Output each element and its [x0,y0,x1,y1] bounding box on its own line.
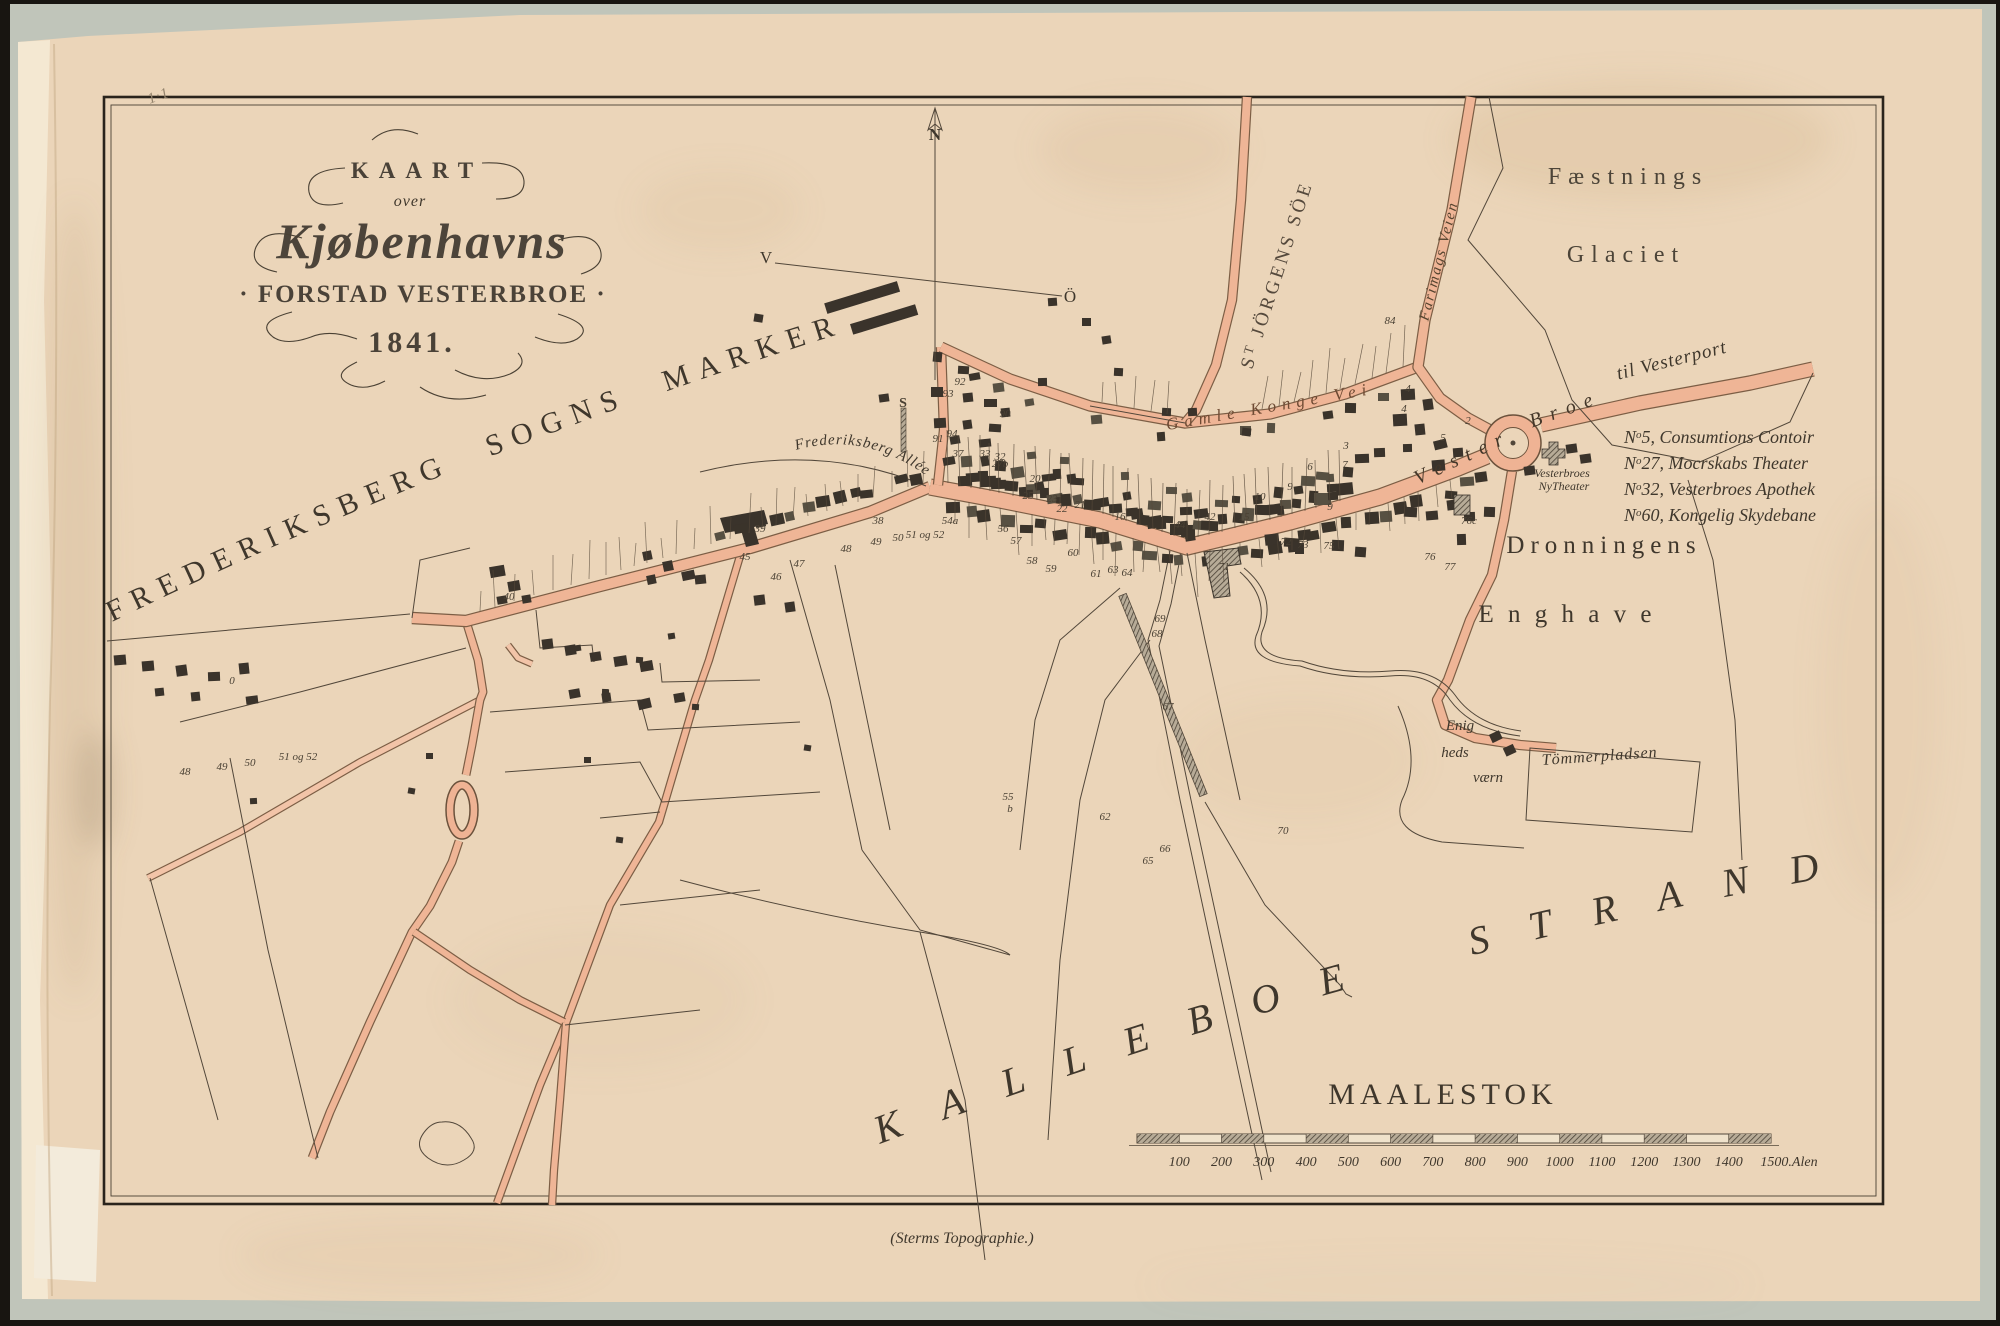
svg-text:0: 0 [229,675,235,687]
svg-text:NyTheater: NyTheater [1538,479,1590,493]
svg-text:76c: 76c [1461,515,1477,527]
svg-text:50: 50 [245,757,257,769]
svg-text:56: 56 [998,523,1010,535]
svg-text:Glaciet: Glaciet [1567,242,1685,268]
svg-text:71: 71 [1219,561,1230,573]
svg-text:64: 64 [1122,567,1134,579]
svg-text:N: N [929,125,942,144]
svg-text:9: 9 [1287,481,1293,493]
svg-text:6: 6 [1307,461,1313,473]
svg-text:værn: værn [1473,770,1503,786]
svg-text:500: 500 [1338,1155,1359,1170]
svg-text:62: 62 [1100,811,1112,823]
svg-text:No27, Mocrskabs Theater: No27, Mocrskabs Theater [1623,453,1809,473]
svg-text:59: 59 [1046,563,1058,575]
svg-text:57: 57 [1011,535,1023,547]
svg-text:25: 25 [1023,490,1035,502]
svg-text:44: 44 [1175,519,1187,531]
svg-text:40: 40 [504,591,516,603]
svg-text:2: 2 [1465,415,1471,427]
svg-text:300: 300 [1252,1155,1274,1170]
svg-text:49: 49 [871,536,883,548]
svg-text:51 og 52: 51 og 52 [906,529,945,541]
svg-text:1841.: 1841. [368,326,456,359]
svg-text:800: 800 [1465,1155,1486,1170]
svg-text:15: 15 [1239,511,1251,523]
svg-text:77: 77 [1445,561,1457,573]
svg-text:200: 200 [1211,1155,1232,1170]
svg-text:Ö: Ö [1064,287,1076,306]
svg-text:69: 69 [1155,613,1167,625]
svg-text:7: 7 [1342,459,1348,471]
svg-text:MAALESTOK: MAALESTOK [1328,1078,1557,1111]
svg-text:94: 94 [947,428,959,440]
svg-text:Fæstnings: Fæstnings [1548,164,1708,190]
svg-text:72: 72 [1281,536,1293,548]
svg-text:9: 9 [1327,501,1333,513]
svg-text:No5, Consumtions Contoir: No5, Consumtions Contoir [1623,427,1815,447]
svg-text:over: over [394,193,426,210]
svg-text:10: 10 [1255,491,1267,503]
svg-text:37: 37 [952,448,965,460]
svg-text:V: V [760,248,773,267]
svg-text:51 og 52: 51 og 52 [279,751,318,763]
svg-text:48: 48 [180,766,192,778]
svg-text:heds: heds [1441,745,1469,761]
svg-text:58: 58 [1027,555,1039,567]
svg-text:48: 48 [841,543,853,555]
svg-text:23: 23 [1047,493,1059,505]
svg-text:91: 91 [933,433,944,445]
svg-text:900: 900 [1507,1155,1528,1170]
svg-text:No32, Vesterbroes Apothek: No32, Vesterbroes Apothek [1623,479,1816,499]
svg-text:63: 63 [1108,564,1120,576]
svg-text:1300: 1300 [1672,1155,1700,1170]
svg-text:70: 70 [1278,825,1290,837]
svg-text:100: 100 [1169,1155,1190,1170]
svg-text:92: 92 [955,376,967,388]
svg-text:· FORSTAD VESTERBROE ·: · FORSTAD VESTERBROE · [239,281,606,308]
svg-text:55: 55 [1003,791,1015,803]
svg-text:E n g h a v e: E n g h a v e [1479,601,1656,628]
svg-text:42: 42 [1205,511,1217,523]
svg-text:(Sterms Topographie.): (Sterms Topographie.) [890,1230,1033,1247]
svg-text:20: 20 [1030,473,1042,485]
svg-text:Enig: Enig [1445,718,1475,734]
svg-text:93: 93 [943,388,955,400]
svg-text:67: 67 [1163,701,1175,713]
svg-text:1400: 1400 [1715,1155,1743,1170]
svg-text:39: 39 [754,523,767,535]
svg-text:4: 4 [1405,383,1411,395]
svg-text:66: 66 [1160,843,1172,855]
svg-text:65: 65 [1143,855,1155,867]
svg-text:68: 68 [1152,628,1164,640]
svg-text:3: 3 [1342,440,1349,452]
svg-text:54a: 54a [942,515,959,527]
svg-text:32: 32 [994,451,1007,463]
svg-text:KAART: KAART [351,158,483,183]
svg-text:5: 5 [1440,432,1446,444]
svg-text:1200: 1200 [1630,1155,1658,1170]
svg-text:21: 21 [1075,499,1086,511]
svg-text:1500.Alen: 1500.Alen [1760,1155,1817,1170]
svg-text:22: 22 [1057,503,1069,515]
svg-text:38: 38 [872,515,885,527]
svg-text:1100: 1100 [1588,1155,1615,1170]
svg-text:90: 90 [1000,408,1012,420]
svg-text:1000: 1000 [1546,1155,1574,1170]
svg-text:700: 700 [1422,1155,1443,1170]
svg-text:400: 400 [1296,1155,1317,1170]
svg-text:47: 47 [794,558,806,570]
svg-text:73: 73 [1298,539,1310,551]
svg-text:Dronningens: Dronningens [1506,532,1701,559]
svg-text:61: 61 [1091,568,1102,580]
svg-text:84: 84 [1385,315,1397,327]
svg-text:60: 60 [1068,547,1080,559]
svg-text:S: S [899,396,907,411]
svg-text:No60, Kongelig Skydebane: No60, Kongelig Skydebane [1623,505,1816,525]
svg-text:600: 600 [1380,1155,1401,1170]
svg-text:b: b [1007,803,1013,815]
svg-text:50: 50 [893,532,905,544]
svg-text:16: 16 [1115,511,1127,523]
svg-text:4: 4 [1401,403,1407,415]
svg-text:46: 46 [771,571,783,583]
svg-text:76: 76 [1425,551,1437,563]
svg-text:Kjøbenhavns: Kjøbenhavns [275,213,568,269]
svg-text:33: 33 [979,448,992,460]
svg-text:49: 49 [217,761,229,773]
svg-text:45: 45 [740,551,752,563]
svg-text:75: 75 [1324,540,1336,552]
svg-text:Vesterbroes: Vesterbroes [1534,466,1590,480]
